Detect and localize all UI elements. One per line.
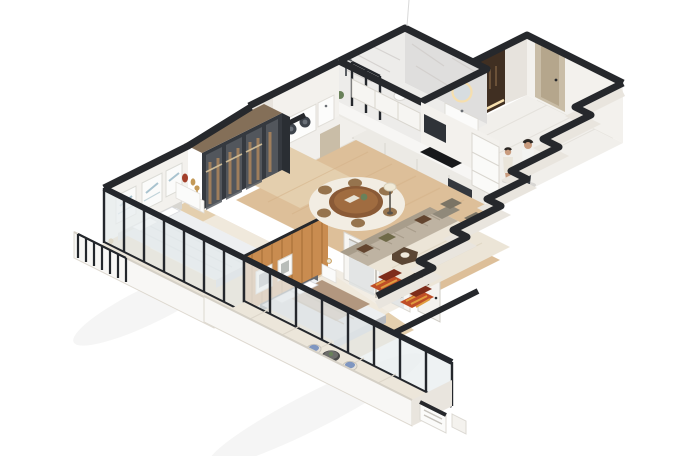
washer-door-2-ring xyxy=(303,120,308,125)
dining-table-top xyxy=(334,189,378,214)
vanity-faucet xyxy=(461,110,464,113)
bedroom2-door-handle xyxy=(435,297,438,300)
laundry-faucet xyxy=(325,105,328,108)
coffee-table-1-tray xyxy=(401,252,410,258)
floorplan-render: 3D isometric floor plan render of a two-… xyxy=(0,0,700,456)
centerpiece-plant xyxy=(361,194,368,201)
floorplan-svg: 3D isometric floor plan render of a two-… xyxy=(0,0,700,456)
bistro-plant xyxy=(329,352,333,356)
ceiling-wire xyxy=(407,0,409,26)
ac-unit-2 xyxy=(452,414,466,434)
door-handle xyxy=(555,79,558,82)
entrance-door xyxy=(541,46,559,106)
closet-side xyxy=(282,113,290,174)
